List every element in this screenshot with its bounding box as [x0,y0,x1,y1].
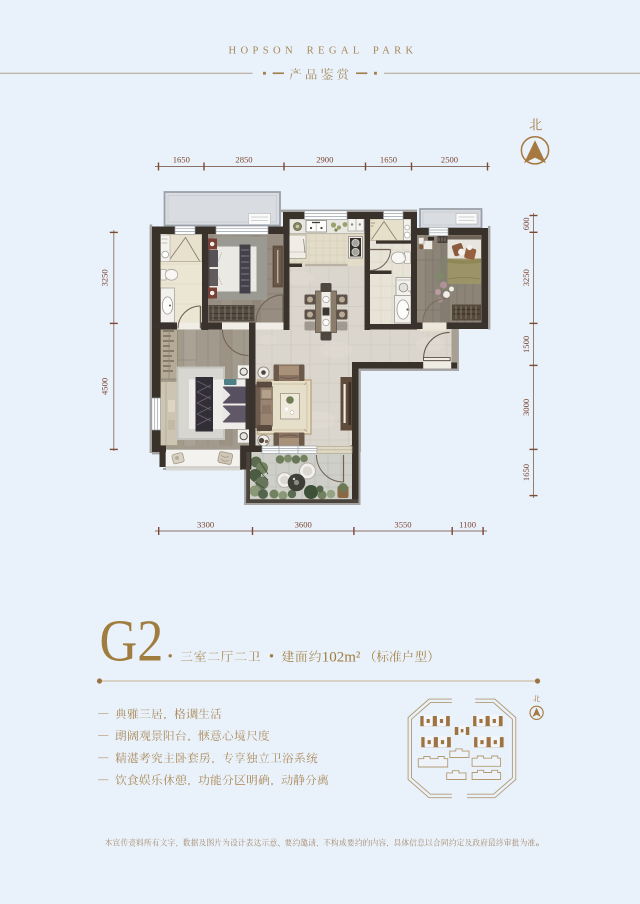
svg-text:102m²: 102m² [322,649,361,665]
svg-text:1500: 1500 [521,336,531,353]
svg-text:1100: 1100 [459,519,476,529]
svg-text:4500: 4500 [100,378,110,395]
svg-text:2500: 2500 [441,154,458,164]
svg-text:1650: 1650 [173,154,190,164]
svg-text:3550: 3550 [394,519,411,529]
svg-text:3250: 3250 [100,269,110,286]
svg-text:3600: 3600 [295,519,312,529]
svg-text:600: 600 [521,217,531,230]
svg-text:3000: 3000 [521,399,531,416]
svg-text:3300: 3300 [197,519,214,529]
svg-text:G2: G2 [100,609,164,675]
svg-text:1650: 1650 [521,464,531,481]
svg-text:2850: 2850 [235,154,252,164]
svg-text:HOPSON REGAL PARK: HOPSON REGAL PARK [229,45,418,56]
svg-text:2900: 2900 [316,154,333,164]
svg-text:3250: 3250 [521,269,531,286]
svg-text:1650: 1650 [380,154,397,164]
